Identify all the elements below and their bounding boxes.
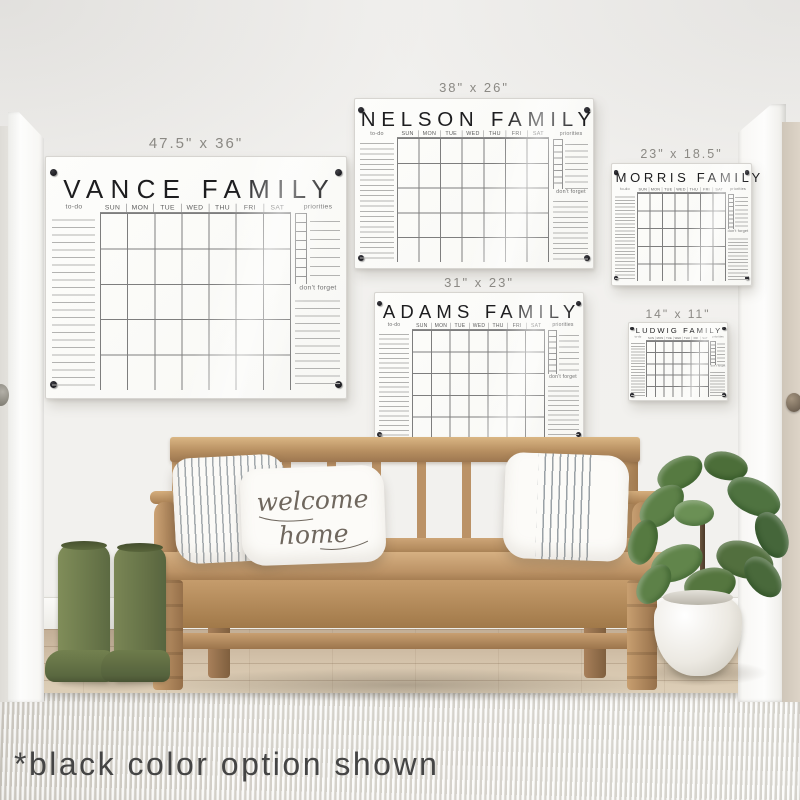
board-title: ADAMS FAMILY xyxy=(375,301,583,323)
size-label: 31" x 23" xyxy=(375,275,583,290)
todo-lines xyxy=(631,341,645,397)
month-grid-column: SUNMONTUEWEDTHUFRISAT xyxy=(412,322,545,438)
checklist-lines xyxy=(565,139,589,189)
checkboxes xyxy=(710,341,715,364)
todo-lines xyxy=(379,330,409,438)
todo-column: to-do xyxy=(631,336,645,397)
board-content: to-do SUNMONTUEWEDTHUFRISAT priorities d… xyxy=(615,187,748,281)
size-label: 14" x 11" xyxy=(629,307,727,321)
board-title: VANCE FAMILY xyxy=(46,174,346,205)
priorities-label: priorities xyxy=(553,322,574,328)
priorities-checklist xyxy=(553,139,588,189)
dont-forget-lines xyxy=(710,370,725,397)
dont-forget-label: don't forget xyxy=(556,188,586,194)
month-grid xyxy=(100,213,292,390)
bench-apron xyxy=(161,580,647,628)
board-title: NELSON FAMILY xyxy=(355,108,593,132)
plant-pot xyxy=(654,592,742,676)
checkboxes xyxy=(728,194,735,230)
priorities-column: priorities don't forget xyxy=(295,203,340,390)
todo-label: to-do xyxy=(65,203,82,211)
day-header: SUNMONTUEWEDTHUFRISAT xyxy=(637,187,726,192)
priorities-checklist xyxy=(548,330,579,374)
calendar-board-ludwig: 14" x 11" LUDWIG FAMILY to-do SUNMONTUEW… xyxy=(628,322,728,401)
todo-column: to-do xyxy=(379,322,409,438)
dont-forget-label: don't forget xyxy=(710,364,725,367)
month-grid-column: SUNMONTUEWEDTHUFRISAT xyxy=(397,130,549,262)
month-grid xyxy=(637,193,726,281)
left-door xyxy=(0,112,44,702)
dont-forget-lines xyxy=(728,236,749,281)
todo-lines xyxy=(360,139,394,263)
caption: *black color option shown xyxy=(14,746,439,783)
priorities-label: priorities xyxy=(559,130,582,136)
todo-column: to-do xyxy=(52,203,95,390)
todo-column: to-do xyxy=(360,130,394,262)
month-grid-column: SUNMONTUEWEDTHUFRISAT xyxy=(637,187,726,281)
priorities-checklist xyxy=(295,213,340,284)
month-grid xyxy=(397,138,549,262)
todo-column: to-do xyxy=(615,187,635,281)
checklist-lines xyxy=(559,330,579,374)
todo-label: to-do xyxy=(370,130,384,136)
pillow-script-text: welcome home xyxy=(239,465,386,567)
month-grid xyxy=(412,330,545,438)
bench-stretcher xyxy=(182,633,628,649)
checklist-lines xyxy=(717,341,726,364)
svg-text:welcome: welcome xyxy=(256,484,369,517)
checkboxes xyxy=(295,213,307,284)
board-content: to-do SUNMONTUEWEDTHUFRISAT priorities d… xyxy=(52,203,340,390)
right-door-knob xyxy=(786,393,800,412)
todo-lines xyxy=(615,194,635,281)
dont-forget-lines xyxy=(553,197,588,262)
dont-forget-label: don't forget xyxy=(299,284,336,292)
checkboxes xyxy=(548,330,557,374)
priorities-column: priorities don't forget xyxy=(728,187,749,281)
svg-text:home: home xyxy=(278,519,349,550)
month-grid xyxy=(646,341,709,398)
priorities-label: priorities xyxy=(712,335,723,338)
checklist-lines xyxy=(735,194,748,230)
priorities-column: priorities don't forget xyxy=(548,322,579,438)
todo-label: to-do xyxy=(620,186,629,190)
calendar-board-adams: 31" x 23" ADAMS FAMILY to-do SUNMONTUEWE… xyxy=(374,292,584,444)
size-label: 47.5" x 36" xyxy=(46,135,346,152)
right-boot xyxy=(114,546,166,680)
checklist-lines xyxy=(310,213,340,284)
priorities-label: priorities xyxy=(730,186,746,190)
priorities-column: priorities don't forget xyxy=(710,336,725,397)
size-label: 23" x 18.5" xyxy=(612,147,751,161)
size-label: 38" x 26" xyxy=(355,80,593,95)
calendar-board-vance: 47.5" x 36" VANCE FAMILY to-do SUNMONTUE… xyxy=(45,156,347,399)
board-content: to-do SUNMONTUEWEDTHUFRISAT priorities d… xyxy=(360,130,589,262)
todo-lines xyxy=(52,213,95,389)
month-grid-column: SUNMONTUEWEDTHUFRISAT xyxy=(100,203,292,390)
fiddle-leaf-fig xyxy=(618,452,800,680)
striped-pillow-right xyxy=(502,452,630,562)
board-content: to-do SUNMONTUEWEDTHUFRISAT priorities d… xyxy=(379,322,579,438)
day-header: SUNMONTUEWEDTHUFRISAT xyxy=(646,336,709,339)
welcome-home-pillow: welcome home xyxy=(239,465,386,567)
month-grid-column: SUNMONTUEWEDTHUFRISAT xyxy=(646,336,709,397)
plant-leaf xyxy=(673,498,715,527)
calendar-board-morris: 23" x 18.5" MORRIS FAMILY to-do SUNMONTU… xyxy=(611,163,752,286)
dont-forget-label: don't forget xyxy=(727,229,748,233)
board-title: MORRIS FAMILY xyxy=(612,170,751,185)
rain-boots xyxy=(50,541,180,689)
left-door-frame xyxy=(8,112,44,702)
checkboxes xyxy=(553,139,563,189)
priorities-checklist xyxy=(728,194,749,230)
day-header: SUNMONTUEWEDTHUFRISAT xyxy=(412,323,545,329)
priorities-label: priorities xyxy=(303,203,332,211)
dont-forget-lines xyxy=(295,294,340,389)
day-header: SUNMONTUEWEDTHUFRISAT xyxy=(397,131,549,137)
dont-forget-lines xyxy=(548,382,579,437)
board-title: LUDWIG FAMILY xyxy=(629,326,727,335)
day-header: SUNMONTUEWEDTHUFRISAT xyxy=(100,204,292,212)
todo-label: to-do xyxy=(635,335,642,338)
calendar-board-nelson: 38" x 26" NELSON FAMILY to-do SUNMONTUEW… xyxy=(354,98,594,269)
priorities-column: priorities don't forget xyxy=(553,130,588,262)
dont-forget-label: don't forget xyxy=(549,374,577,380)
board-content: to-do SUNMONTUEWEDTHUFRISAT priorities d… xyxy=(631,336,725,397)
todo-label: to-do xyxy=(388,322,401,328)
priorities-checklist xyxy=(710,341,725,364)
